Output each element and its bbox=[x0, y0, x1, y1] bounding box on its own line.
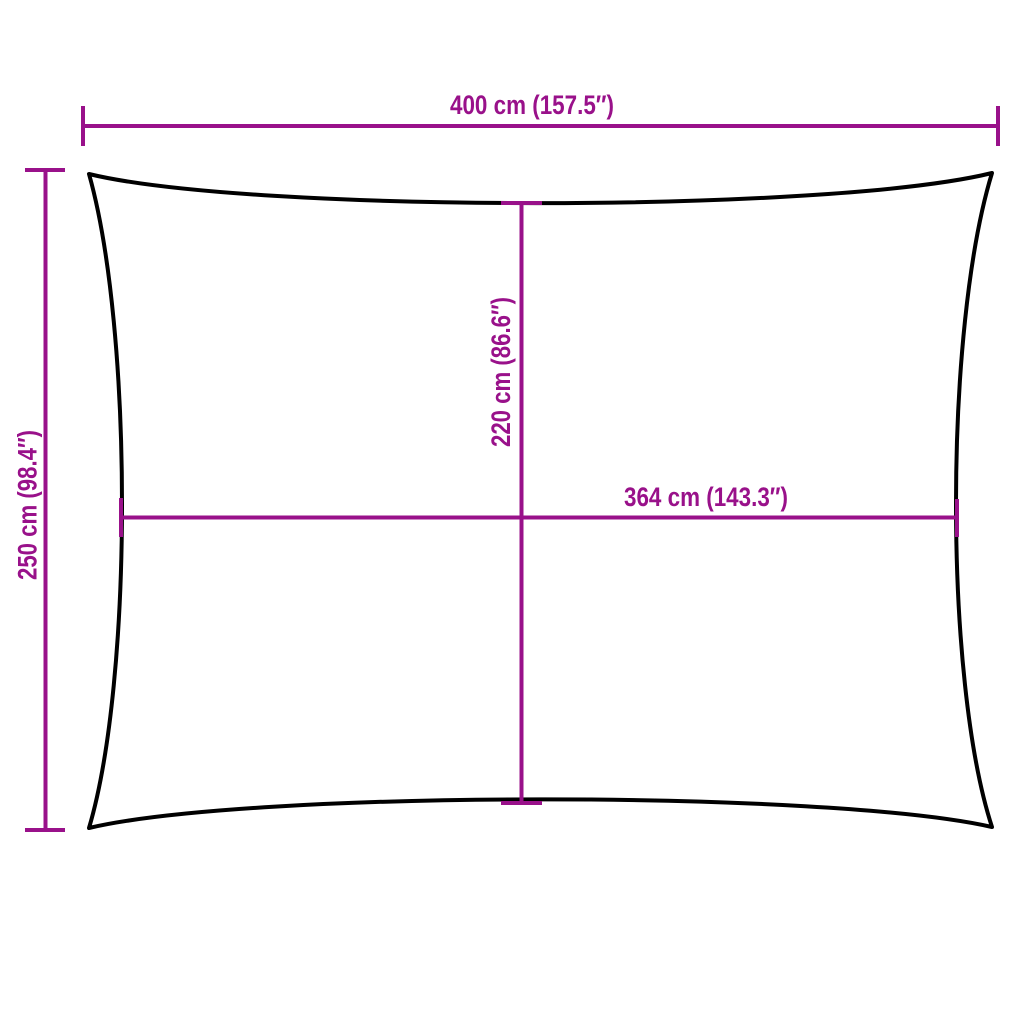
svg-text:400 cm (157.5″): 400 cm (157.5″) bbox=[450, 90, 614, 120]
svg-text:364 cm (143.3″): 364 cm (143.3″) bbox=[624, 482, 788, 512]
svg-text:250 cm (98.4″): 250 cm (98.4″) bbox=[13, 430, 43, 580]
svg-text:220 cm (86.6″): 220 cm (86.6″) bbox=[486, 297, 516, 447]
